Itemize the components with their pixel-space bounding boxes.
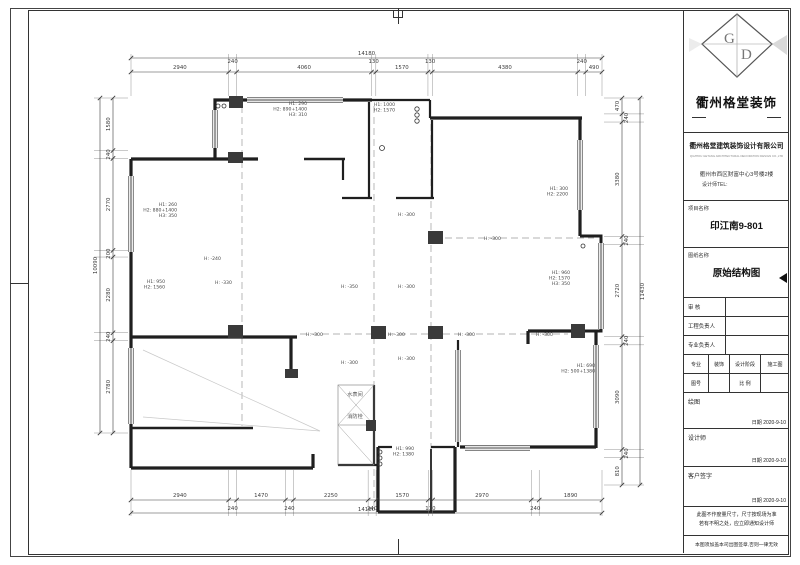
svg-text:240: 240 — [624, 335, 630, 346]
svg-text:1580: 1580 — [106, 117, 112, 131]
svg-text:2770: 2770 — [106, 197, 112, 211]
level-note: H: -330 — [215, 280, 232, 286]
drawing-sheet: 2940240406013015701304380240490141802940… — [0, 0, 800, 565]
room-label: 消防栓 — [347, 412, 363, 420]
svg-text:2720: 2720 — [615, 283, 621, 297]
level-note: H: -300 — [484, 236, 501, 242]
drawing-no-label: 图号 — [684, 374, 709, 393]
company-address: 衢州市西区财富中心3号楼2楼 — [684, 170, 789, 178]
beam-note: H1: 290H2: 890+1400H3: 310 — [273, 101, 307, 118]
level-note: H: -240 — [204, 256, 221, 262]
designer-date: 日期 2020-9-10 — [752, 457, 786, 464]
draftsman-box: 绘图 日期 2020-9-10 — [684, 392, 789, 428]
logo-shadow-right — [772, 35, 787, 55]
major-label: 专业 — [684, 355, 709, 374]
company-info-box: 衢州格堂建筑装饰设计有限公司 QUZHOU GETANG ARCHITECTUR… — [684, 132, 789, 200]
disclaimer-line-1: 此图不作度量尺寸，尺寸按现场为准 — [684, 511, 789, 520]
svg-text:2940: 2940 — [173, 65, 187, 71]
logo-shadow-left — [689, 38, 702, 52]
svg-text:1570: 1570 — [395, 65, 409, 71]
level-note: H: -350 — [341, 284, 358, 290]
level-notes: H: -240H: -330H: -350H: -300H: -300H: -3… — [204, 212, 553, 366]
svg-text:2940: 2940 — [173, 493, 187, 499]
logo-letter-g: G — [724, 31, 735, 47]
beam-note: H1: 300H2: 2200 — [547, 186, 568, 197]
svg-text:3380: 3380 — [615, 172, 621, 186]
sketch-lines — [143, 350, 320, 431]
brand-name: 衢州格堂装饰 — [684, 92, 789, 111]
project-manager-value — [726, 317, 789, 335]
svg-text:10090: 10090 — [93, 256, 99, 274]
scale-label: 比 例 — [730, 374, 761, 393]
logo-letter-d: D — [741, 47, 752, 63]
level-note: H: -300 — [398, 212, 415, 218]
svg-text:14180: 14180 — [358, 507, 376, 513]
walls — [131, 100, 601, 512]
title-block: G D 衢州格堂装饰 衢州格堂建筑装饰设计有限公司 QUZHOU GETANG … — [683, 11, 789, 553]
room-label: 水表间 — [347, 390, 363, 398]
logo-divider-ticks — [684, 117, 789, 118]
svg-text:1570: 1570 — [395, 493, 409, 499]
level-note: H: -300 — [458, 332, 475, 338]
designer-box: 设计师 日期 2020-9-10 — [684, 428, 789, 466]
reviewer-value — [726, 298, 789, 316]
svg-text:490: 490 — [589, 65, 600, 71]
designer-tel-label: 设计师TEL: — [684, 181, 789, 188]
svg-text:2970: 2970 — [475, 493, 489, 499]
windows — [128, 97, 603, 450]
scale-value — [761, 374, 789, 393]
company-name: 衢州格堂建筑装饰设计有限公司 — [686, 141, 787, 151]
beam-note: H1: 990H2: 1380 — [393, 446, 414, 457]
stage-value: 施工图 — [761, 355, 789, 374]
client-signature-label: 客户签字 — [684, 467, 789, 480]
designer-label: 设计师 — [684, 429, 789, 442]
drawing-no-value — [709, 374, 730, 393]
draftsman-date: 日期 2020-9-10 — [752, 419, 786, 426]
svg-text:3090: 3090 — [615, 390, 621, 404]
svg-text:200: 200 — [106, 248, 112, 259]
svg-text:130: 130 — [425, 506, 436, 512]
level-note: H: -300 — [398, 356, 415, 362]
discipline-manager-value — [726, 336, 789, 354]
disclaimer-line-2: 若有不明之处，应立即通知设计师 — [684, 520, 789, 529]
svg-text:240: 240 — [106, 331, 112, 342]
svg-text:240: 240 — [106, 149, 112, 160]
beam-note: H1: 260H2: 880+1400H3: 350 — [143, 202, 177, 219]
svg-text:2780: 2780 — [106, 379, 112, 393]
svg-text:1470: 1470 — [254, 493, 268, 499]
project-name-box: 项目名称 印江南9-801 — [684, 200, 789, 247]
floor-plan: 2940240406013015701304380240490141802940… — [0, 0, 800, 565]
reviewer-label: 审 核 — [684, 298, 726, 316]
svg-text:240: 240 — [227, 506, 238, 512]
svg-text:11430: 11430 — [640, 282, 646, 300]
project-manager-label: 工程负责人 — [684, 317, 726, 335]
beam-note: H1: 950H2: 1560 — [144, 279, 165, 290]
drawing-name-box: 图纸名称 原始结构图 — [684, 247, 789, 297]
svg-text:240: 240 — [577, 59, 588, 65]
beam-note: H1: 690H2: 500+1380 — [561, 363, 595, 374]
svg-text:240: 240 — [227, 59, 238, 65]
draftsman-label: 绘图 — [684, 393, 789, 406]
disclaimer-box: 此图不作度量尺寸，尺寸按现场为准 若有不明之处，应立即通知设计师 — [684, 506, 789, 535]
svg-text:4380: 4380 — [498, 65, 512, 71]
svg-text:810: 810 — [615, 466, 621, 477]
validity-note: 本图须加盖本司出图签章,否则一律无效 — [684, 535, 789, 554]
room-labels: 水表间消防栓 — [347, 390, 363, 420]
client-signature-date: 日期 2020-9-10 — [752, 497, 786, 504]
svg-text:130: 130 — [368, 59, 379, 65]
company-name-en: QUZHOU GETANG ARCHITECTURAL DECORATION D… — [689, 154, 784, 158]
columns — [228, 96, 585, 431]
svg-text:240: 240 — [624, 235, 630, 246]
svg-text:1890: 1890 — [564, 493, 578, 499]
level-note: H: -300 — [536, 332, 553, 338]
svg-text:240: 240 — [530, 506, 541, 512]
project-name-label: 项目名称 — [684, 201, 789, 212]
svg-text:470: 470 — [615, 100, 621, 111]
svg-text:240: 240 — [284, 506, 295, 512]
stage-label: 设计阶段 — [730, 355, 761, 374]
svg-text:240: 240 — [624, 448, 630, 459]
discipline-manager-label: 专业负责人 — [684, 336, 726, 354]
client-signature-box: 客户签字 日期 2020-9-10 — [684, 466, 789, 506]
beam-note: H1: 1000H2: 1570 — [374, 102, 395, 113]
company-logo-box: G D 衢州格堂装饰 — [684, 11, 789, 132]
level-note: H: -300 — [388, 332, 405, 338]
drawing-name-value: 原始结构图 — [684, 265, 789, 279]
svg-text:2280: 2280 — [106, 287, 112, 301]
major-value: 装饰 — [709, 355, 730, 374]
level-note: H: -300 — [341, 360, 358, 366]
level-note: H: -300 — [398, 284, 415, 290]
beam-note: H1: 960H2: 1570H3: 350 — [549, 270, 570, 287]
discipline-manager-row: 专业负责人 — [684, 335, 789, 354]
reviewer-row: 审 核 — [684, 297, 789, 316]
svg-text:240: 240 — [624, 112, 630, 123]
svg-text:14180: 14180 — [358, 51, 376, 57]
level-note: H: -300 — [306, 332, 323, 338]
company-logo: G D — [684, 11, 789, 85]
project-name-value: 印江南9-801 — [684, 218, 789, 232]
svg-text:130: 130 — [425, 59, 436, 65]
svg-text:4060: 4060 — [297, 65, 311, 71]
svg-text:2250: 2250 — [324, 493, 338, 499]
drawing-meta-grid: 专业 装饰 设计阶段 施工图 图号 比 例 — [684, 354, 789, 392]
drawing-name-label: 图纸名称 — [684, 248, 789, 259]
project-manager-row: 工程负责人 — [684, 316, 789, 335]
